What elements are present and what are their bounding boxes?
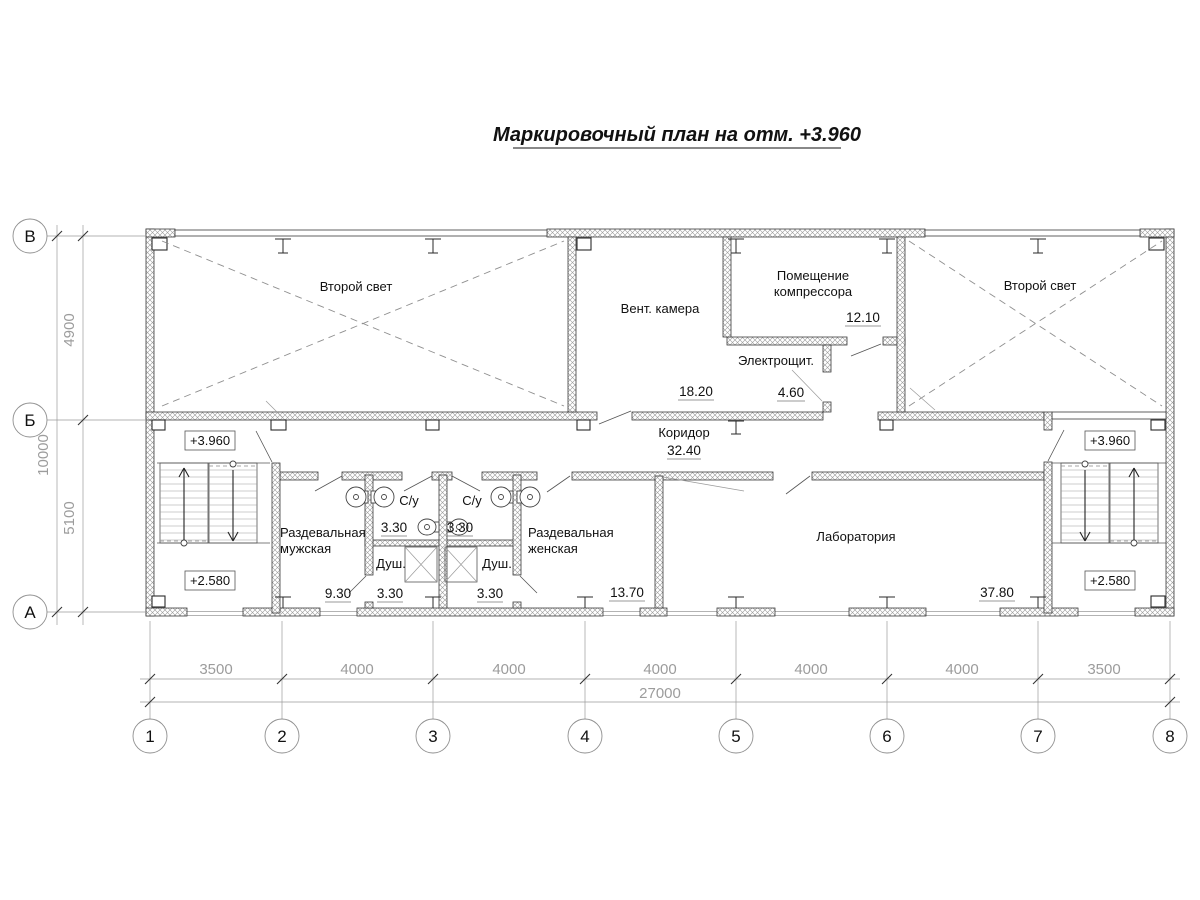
dim-left-upper: 4900 — [61, 313, 78, 346]
svg-text:А: А — [24, 603, 36, 622]
column-square — [577, 238, 591, 250]
drawing-sheet: Маркировочный план на отм. +3.960 — [0, 0, 1200, 900]
stair-right — [1052, 461, 1166, 546]
room-labels: Второй свет Второй свет Вент. камера 18.… — [280, 268, 1076, 602]
dim-left-overall: 10000 — [35, 434, 52, 476]
page-title: Маркировочный план на отм. +3.960 — [493, 124, 861, 146]
area-su-left: 3.30 — [381, 520, 407, 535]
svg-text:5: 5 — [731, 727, 740, 746]
area-lab: 37.80 — [980, 585, 1014, 600]
wall-top-overhead-right — [925, 230, 1140, 236]
area-compressor: 12.10 — [846, 310, 880, 325]
area-su-right: 3.30 — [447, 520, 473, 535]
room-second-light-left: Второй свет — [320, 279, 393, 294]
svg-text:8: 8 — [1165, 727, 1174, 746]
column-square — [152, 596, 165, 607]
dim-span: 4000 — [340, 661, 373, 678]
dim-span: 4000 — [643, 661, 676, 678]
column-ibeam — [1030, 239, 1046, 253]
grid-bubble-5: 5 — [719, 719, 753, 753]
axis-bubble-v: В — [13, 219, 47, 253]
column-ibeam — [728, 421, 744, 434]
wall-top-overhead-left — [175, 230, 547, 236]
column-ibeam — [577, 597, 593, 608]
room-second-light-right: Второй свет — [1004, 278, 1077, 293]
svg-text:1: 1 — [145, 727, 154, 746]
column-ibeam — [1030, 597, 1046, 608]
room-dress-m-line1: Раздевальная — [280, 525, 366, 540]
column-ibeam — [728, 597, 744, 608]
stair-up-arrow — [1129, 468, 1139, 540]
stair-right-landing-edge — [1052, 412, 1166, 419]
area-dress-f: 13.70 — [610, 585, 644, 600]
level-lower-right: +2.580 — [1090, 573, 1130, 588]
column-square — [426, 420, 439, 430]
void-cross-left — [162, 241, 564, 406]
wall-dressf-east — [655, 476, 663, 608]
svg-text:2: 2 — [277, 727, 286, 746]
void-cross-right — [909, 241, 1162, 406]
grid-bubble-3: 3 — [416, 719, 450, 753]
wall-vent-west — [568, 237, 576, 412]
axis-bubble-a: А — [13, 595, 47, 629]
floor-plan-drawing: Маркировочный план на отм. +3.960 — [0, 0, 1200, 900]
title-block: Маркировочный план на отм. +3.960 — [493, 124, 861, 148]
wall-su-center — [439, 475, 447, 608]
dim-span: 4000 — [945, 661, 978, 678]
room-shower-right: Душ. — [482, 556, 512, 571]
stair-up-arrow — [179, 468, 189, 540]
svg-text:В: В — [24, 227, 35, 246]
column-square — [1151, 420, 1165, 430]
area-electro: 4.60 — [778, 385, 804, 400]
grid-bubbles: 1 2 3 4 5 6 7 8 — [133, 719, 1187, 753]
column-square — [152, 238, 167, 250]
area-dress-m: 9.30 — [325, 586, 351, 601]
dim-total: 27000 — [639, 685, 681, 702]
wall-row-b-3 — [878, 412, 1044, 420]
wall-vent-compressor — [723, 237, 731, 337]
level-upper-right: +3.960 — [1090, 433, 1130, 448]
room-vent: Вент. камера — [621, 301, 700, 316]
grid-bubble-2: 2 — [265, 719, 299, 753]
wall-stair-left-east — [272, 463, 280, 613]
axis-rows: 10000 4900 5100 В Б А — [13, 219, 146, 629]
area-shower-left: 3.30 — [377, 586, 403, 601]
column-square — [577, 420, 590, 430]
wall-electro-stub — [823, 345, 831, 372]
stair-down-arrow — [1080, 470, 1090, 541]
wall-stair-right-west — [1044, 462, 1052, 613]
room-su-left: С/у — [399, 493, 419, 508]
dim-span: 3500 — [199, 661, 232, 678]
svg-text:6: 6 — [882, 727, 891, 746]
stair-down-arrow — [228, 470, 238, 541]
svg-text:4: 4 — [580, 727, 589, 746]
svg-text:7: 7 — [1033, 727, 1042, 746]
stair-left — [157, 461, 270, 546]
dim-left-lower: 5100 — [61, 501, 78, 534]
svg-text:Б: Б — [24, 411, 35, 430]
room-corridor: Коридор — [658, 425, 709, 440]
column-square — [271, 420, 286, 430]
column-ibeam — [879, 597, 895, 608]
column-square — [880, 420, 893, 430]
grid-bubble-4: 4 — [568, 719, 602, 753]
level-lower-left: +2.580 — [190, 573, 230, 588]
dimensions-bottom: 3500 4000 4000 4000 4000 4000 3500 27000 — [140, 621, 1180, 719]
level-upper-left: +3.960 — [190, 433, 230, 448]
axis-bubble-b: Б — [13, 403, 47, 437]
area-vent: 18.20 — [679, 384, 713, 399]
column-ibeam — [879, 239, 895, 253]
room-dress-f-line2: женская — [528, 541, 578, 556]
room-dress-f-line1: Раздевальная — [528, 525, 614, 540]
room-su-right: С/у — [462, 493, 482, 508]
column-ibeam — [425, 239, 441, 253]
room-compressor-line2: компрессора — [774, 284, 853, 299]
dim-span: 4000 — [794, 661, 827, 678]
room-compressor-line1: Помещение — [777, 268, 849, 283]
room-dress-m-line2: мужская — [280, 541, 331, 556]
room-shower-left: Душ. — [376, 556, 406, 571]
column-square — [152, 420, 165, 430]
svg-text:3: 3 — [428, 727, 437, 746]
column-square — [1151, 596, 1165, 607]
area-shower-right: 3.30 — [477, 586, 503, 601]
column-ibeam — [275, 239, 291, 253]
wall-row-b-2 — [632, 412, 823, 420]
dim-span: 3500 — [1087, 661, 1120, 678]
grid-bubble-6: 6 — [870, 719, 904, 753]
wall-outer-right — [1166, 229, 1174, 616]
room-electro: Электрощит. — [738, 353, 814, 368]
wall-row-b-1 — [146, 412, 597, 420]
grid-bubble-7: 7 — [1021, 719, 1055, 753]
room-lab: Лаборатория — [816, 529, 895, 544]
dim-span: 4000 — [492, 661, 525, 678]
area-corridor: 32.40 — [667, 443, 701, 458]
wall-top-middle — [547, 229, 925, 237]
grid-bubble-1: 1 — [133, 719, 167, 753]
wall-compressor-east — [897, 237, 905, 412]
grid-bubble-8: 8 — [1153, 719, 1187, 753]
